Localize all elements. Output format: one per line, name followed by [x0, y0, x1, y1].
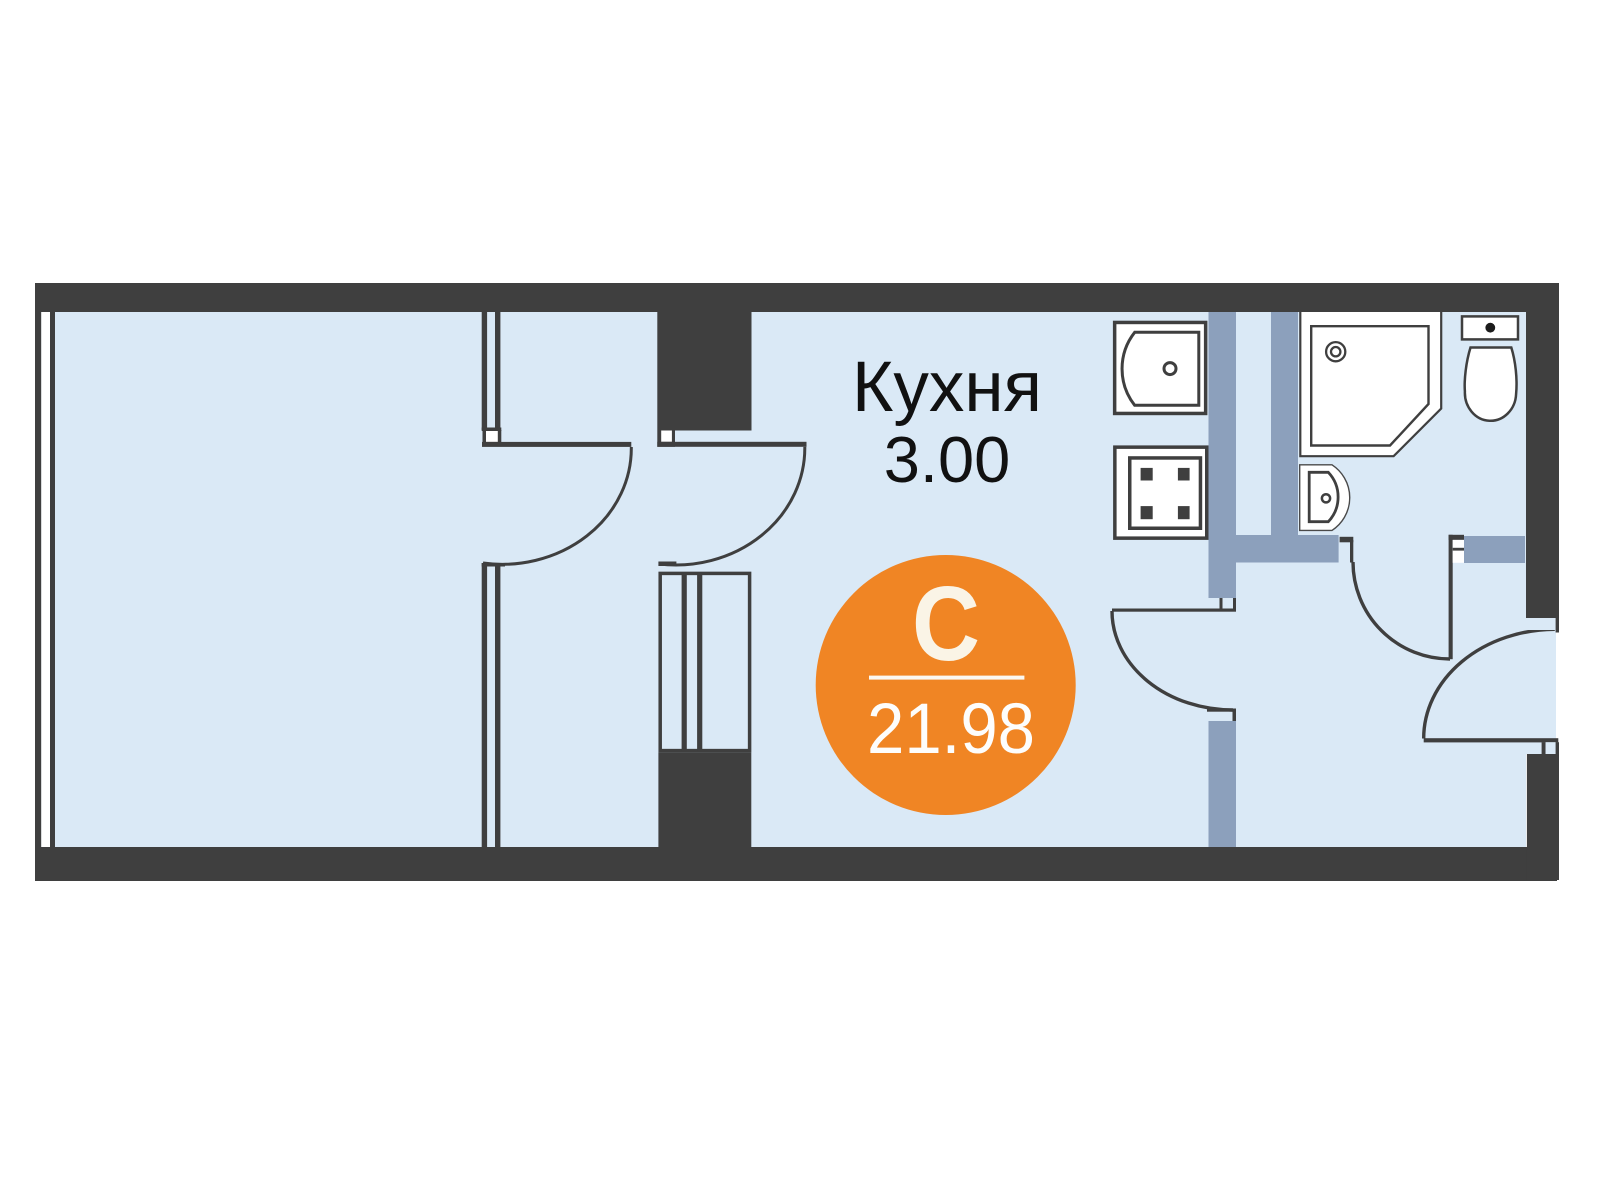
svg-text:Кухня: Кухня	[852, 348, 1042, 427]
svg-text:21.98: 21.98	[867, 690, 1035, 769]
svg-text:3.00: 3.00	[884, 423, 1011, 496]
svg-text:С: С	[912, 565, 980, 683]
